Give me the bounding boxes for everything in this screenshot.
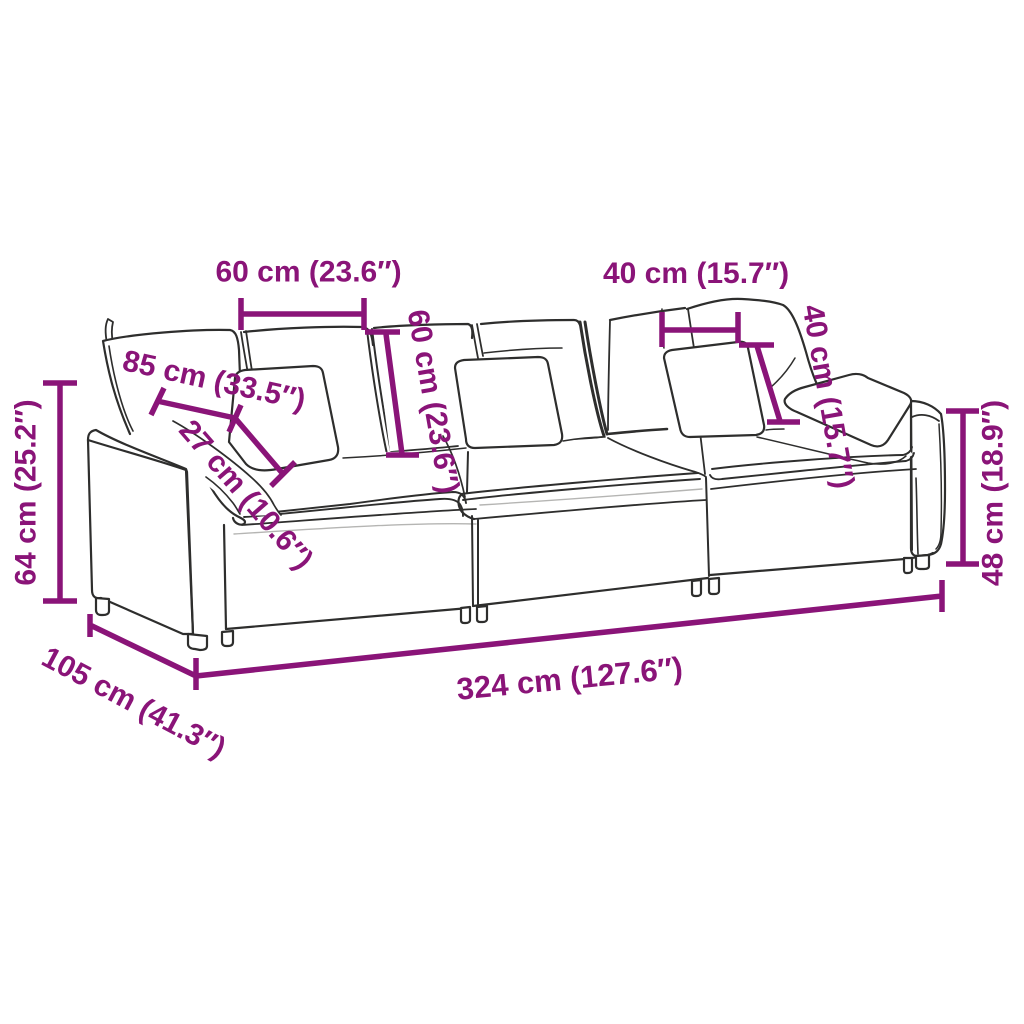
svg-text:64 cm (25.2″): 64 cm (25.2″) (10, 399, 43, 585)
svg-text:48 cm (18.9″): 48 cm (18.9″) (977, 400, 1010, 586)
svg-text:60 cm (23.6″): 60 cm (23.6″) (215, 256, 401, 289)
svg-text:40 cm (15.7″): 40 cm (15.7″) (603, 257, 789, 290)
